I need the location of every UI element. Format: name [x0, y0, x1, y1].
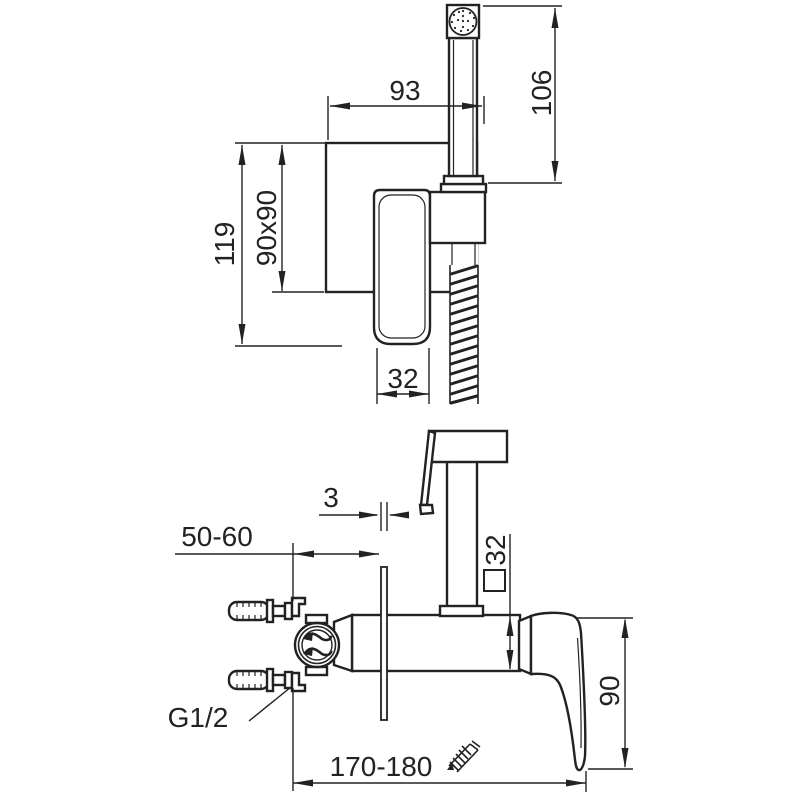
dim-93-label: 93: [389, 75, 420, 106]
front-view: 93 106 119 90x90: [209, 5, 562, 405]
g12-label: G1/2: [168, 702, 229, 733]
wall-anchor-top: [229, 598, 305, 622]
dim-119-label: 119: [209, 222, 240, 267]
shower-hose: [450, 243, 478, 405]
dim-50-60-label: 50-60: [181, 521, 253, 552]
bracket-tab-bottom: [306, 667, 327, 675]
dim-106-label: 106: [526, 70, 557, 117]
dim-170-180-label: 170-180: [330, 751, 433, 782]
bracket-tab-top: [306, 615, 327, 623]
side-view: 3 50-60 32 90: [168, 431, 633, 792]
screw-shaft: [273, 675, 285, 685]
dim-32-square-label: 32: [480, 534, 511, 565]
lever-handle-front: [374, 190, 430, 344]
lever-handle-side: [519, 613, 585, 770]
square-section-symbol: [484, 570, 505, 591]
technical-drawing-page: 93 106 119 90x90: [0, 0, 800, 800]
holder-block-front: [430, 192, 485, 243]
dim-32-front: 32: [377, 348, 429, 404]
mounting-screw-icon: [447, 741, 480, 772]
g12-annotation: G1/2: [168, 687, 291, 733]
shower-head-front: [447, 5, 479, 38]
spray-face-side: [421, 431, 435, 505]
bracket-hook-bottom: [292, 673, 305, 691]
spray-face-foot: [420, 505, 433, 514]
dim-32-front-label: 32: [387, 363, 418, 394]
bracket-hook-top: [292, 598, 305, 616]
screw-shaft: [273, 606, 285, 616]
inlet-connector: [295, 623, 339, 667]
drawing-canvas: 93 106 119 90x90: [0, 0, 800, 800]
dim-106: 106: [483, 6, 562, 183]
wall-anchor-bottom: [229, 669, 305, 691]
sprayer-head-side: [427, 431, 507, 462]
handle-neck: [519, 616, 531, 674]
dim-90x90-label: 90x90: [251, 190, 282, 266]
sprayer-side: [420, 431, 507, 616]
wall-plate-side: [381, 567, 387, 720]
dim-90-label: 90: [594, 675, 625, 706]
dim-3-label: 3: [323, 482, 339, 513]
dim-3: 3: [319, 482, 409, 531]
dim-170-180: 170-180: [293, 751, 586, 792]
dim-90x90: 90x90: [251, 145, 324, 292]
holder-base-side: [440, 606, 483, 616]
